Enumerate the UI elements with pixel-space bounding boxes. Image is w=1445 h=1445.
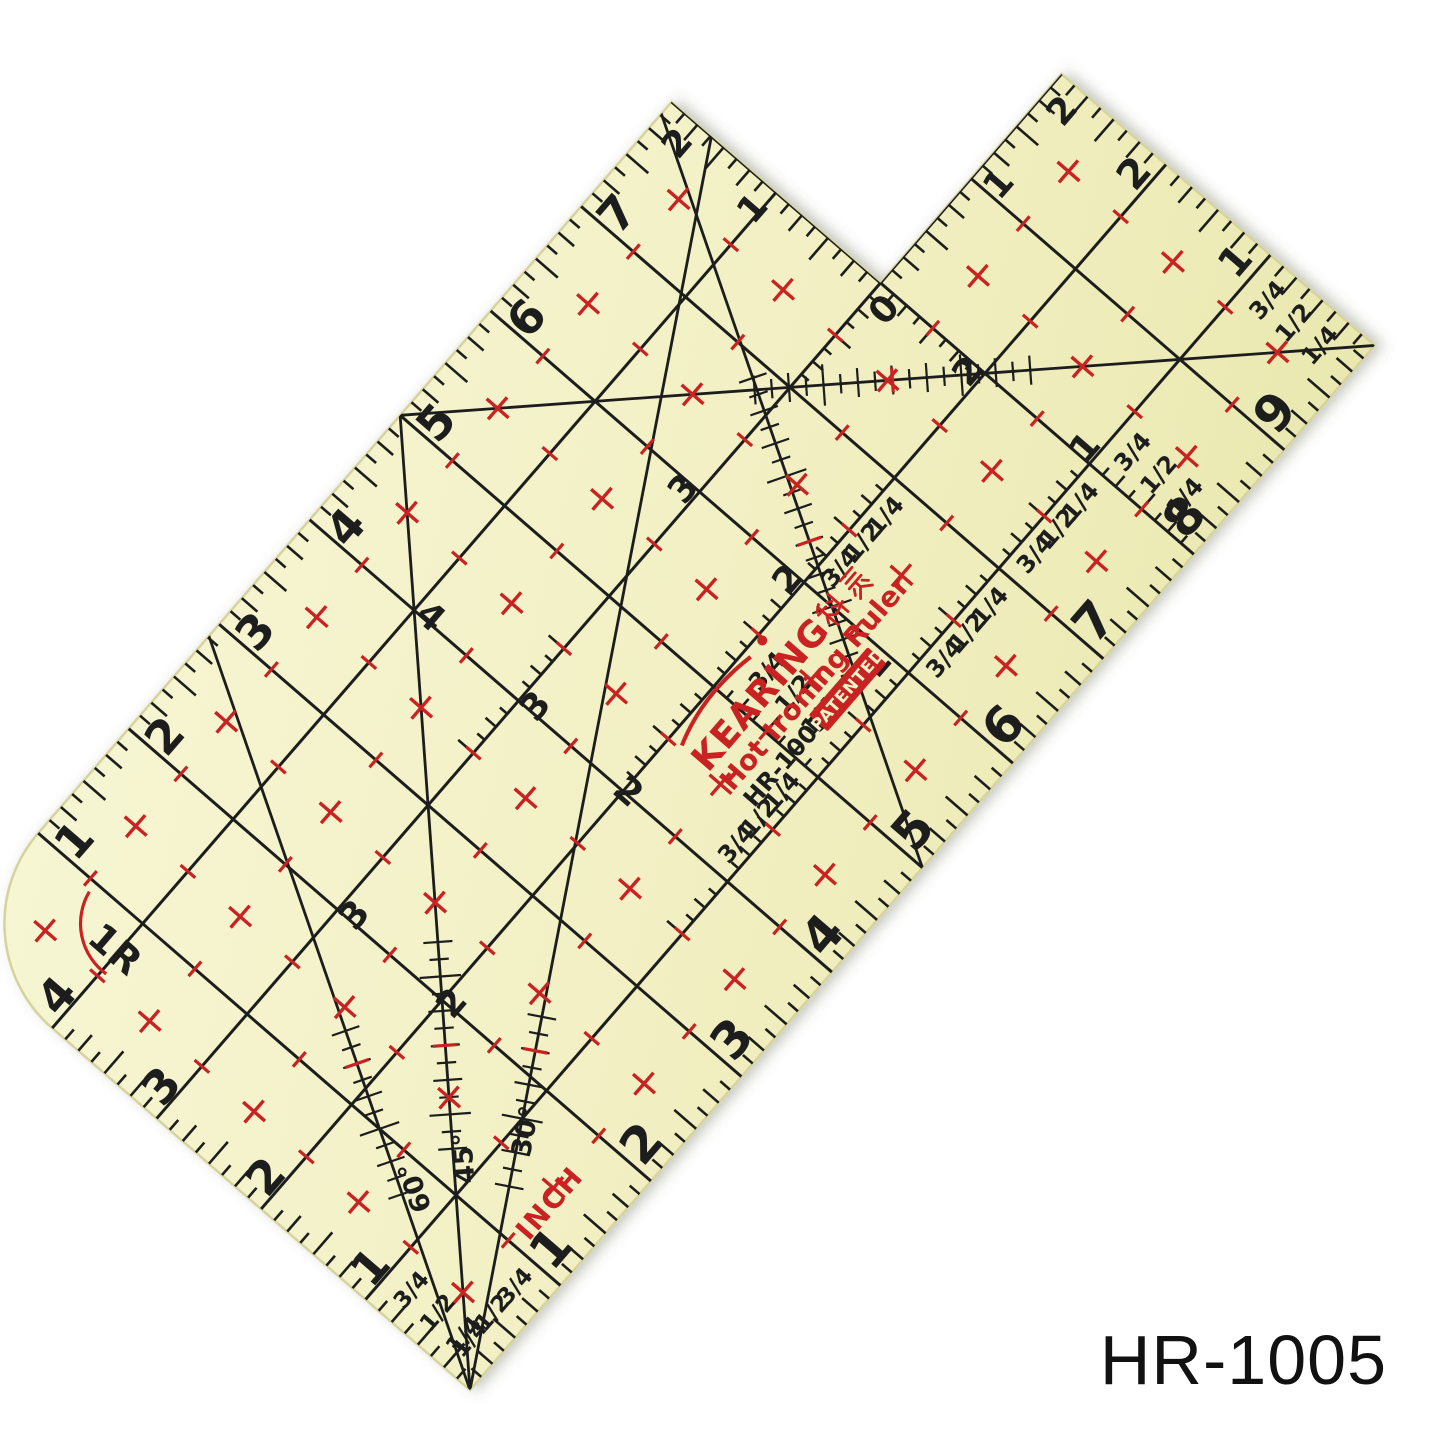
hot-ironing-ruler-graphic: 123456789123456712341/41/23/41/41/23/41/… bbox=[0, 0, 1445, 1445]
model-number-caption: HR-1005 bbox=[1100, 1320, 1387, 1400]
svg-text:45°: 45° bbox=[447, 1132, 482, 1185]
product-photo-stage: 123456789123456712341/41/23/41/41/23/41/… bbox=[0, 0, 1445, 1445]
